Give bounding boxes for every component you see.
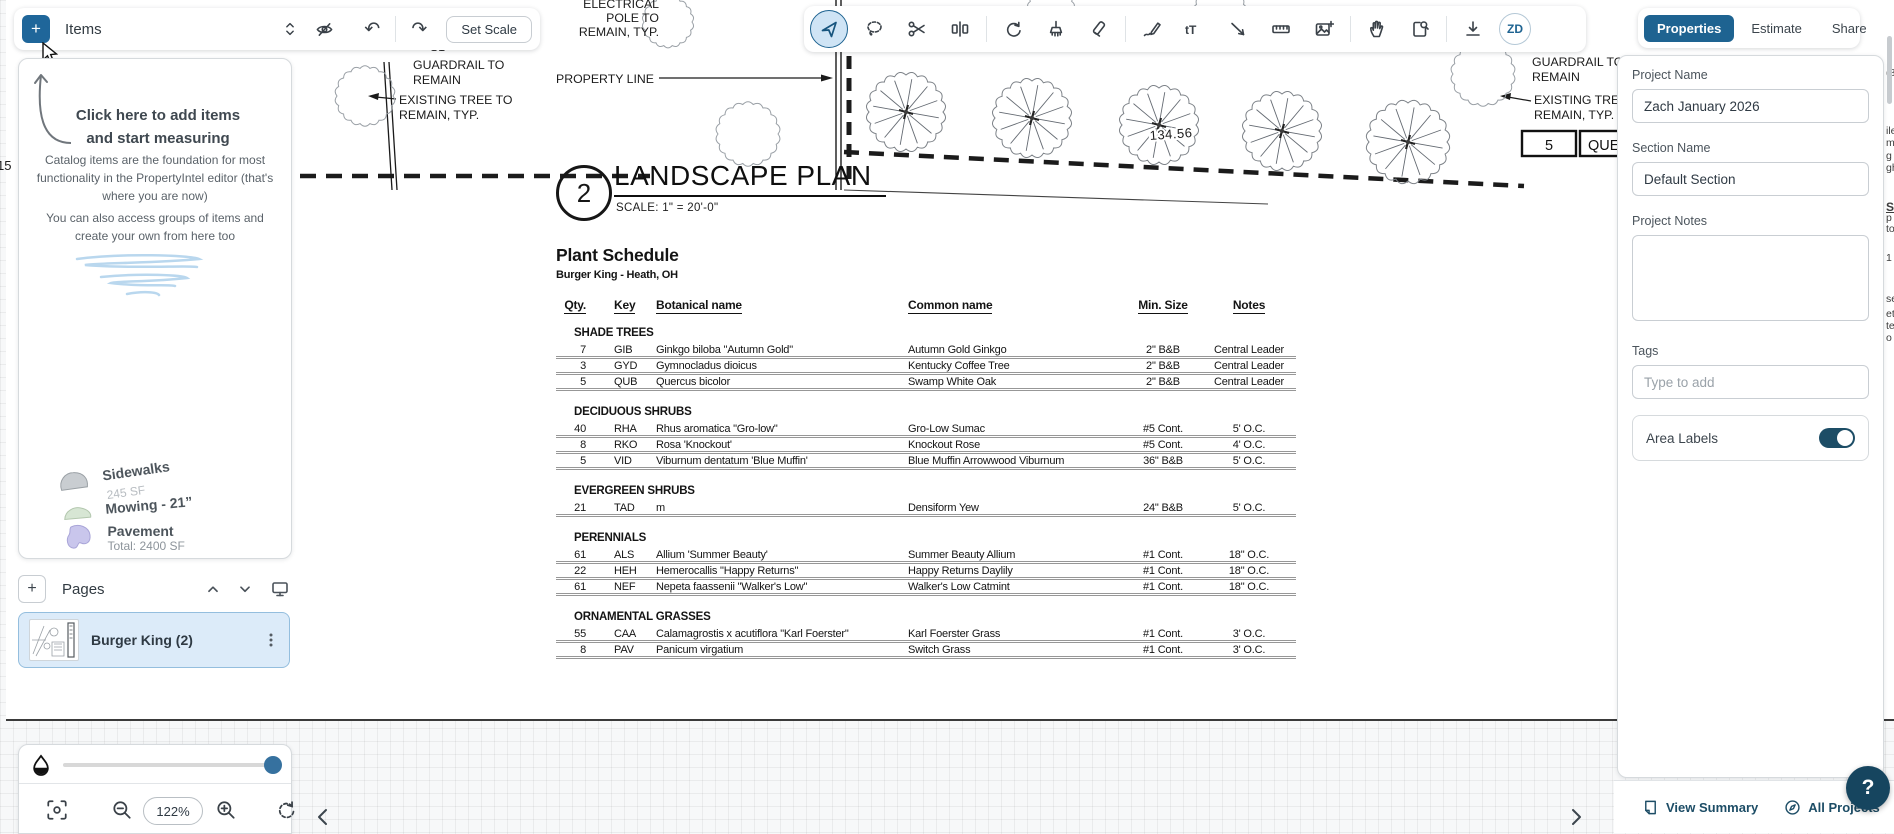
schedule-group: PERENNIALS61ALSAllium 'Summer Beauty'Sum… bbox=[556, 532, 1296, 596]
schedule-cell: Gro-Low Sumac bbox=[906, 423, 1124, 435]
items-toolbar: + Items ↶ ↷ Set Scale bbox=[14, 8, 540, 50]
mowing-swatch bbox=[61, 503, 94, 522]
rotate-tool-button[interactable] bbox=[996, 12, 1030, 46]
eye-off-icon bbox=[315, 20, 334, 39]
plant-schedule-header-row: Qty. Key Botanical name Common name Min.… bbox=[556, 298, 1296, 312]
user-avatar[interactable]: ZD bbox=[1499, 13, 1531, 45]
schedule-group-name: ORNAMENTAL GRASSES bbox=[556, 611, 1296, 627]
schedule-cell: 5' O.C. bbox=[1202, 502, 1296, 514]
schedule-cell: 2" B&B bbox=[1124, 360, 1202, 372]
schedule-cell: 8 bbox=[556, 439, 596, 451]
opacity-slider-handle[interactable] bbox=[264, 756, 282, 774]
collapse-items-button[interactable] bbox=[273, 12, 307, 46]
schedule-cell: Hemerocallis "Happy Returns" bbox=[652, 565, 906, 577]
schedule-cell: 5 bbox=[556, 455, 596, 467]
items-panel-paragraph: Catalog items are the foundation for mos… bbox=[33, 151, 277, 205]
page-search-button[interactable] bbox=[1403, 12, 1437, 46]
schedule-cell: VID bbox=[596, 455, 652, 467]
fit-to-screen-icon[interactable] bbox=[45, 798, 69, 822]
schedule-cell: Karl Foerster Grass bbox=[906, 628, 1124, 640]
drawing-toolbar: tT Z bbox=[804, 6, 1586, 52]
text-size-icon: tT bbox=[1184, 19, 1206, 39]
sample-item-pavement: Pavement Total: 2400 SF bbox=[63, 521, 185, 555]
plan-number-circle: 2 bbox=[556, 165, 612, 221]
edge-text-fragment: ile bbox=[1886, 125, 1894, 137]
hide-items-button[interactable] bbox=[307, 12, 341, 46]
schedule-cell: Nepeta faassenii "Walker's Low" bbox=[652, 581, 906, 593]
schedule-row: 22HEHHemerocallis "Happy Returns"Happy R… bbox=[556, 564, 1296, 580]
schedule-group: ORNAMENTAL GRASSES55CAACalamagrostis x a… bbox=[556, 611, 1296, 659]
schedule-group-name: PERENNIALS bbox=[556, 532, 1296, 548]
edge-text-fragment: o bbox=[1886, 332, 1892, 344]
edge-text-fragment: se bbox=[1886, 293, 1894, 305]
schedule-cell: Summer Beauty Allium bbox=[906, 549, 1124, 561]
schedule-cell: ALS bbox=[596, 549, 652, 561]
area-labels-toggle[interactable] bbox=[1819, 428, 1855, 448]
arrow-tool-button[interactable] bbox=[1221, 12, 1255, 46]
schedule-cell: 2" B&B bbox=[1124, 376, 1202, 388]
items-label: Items bbox=[65, 21, 102, 38]
mirror-icon bbox=[950, 19, 970, 39]
schedule-row: 61NEFNepeta faassenii "Walker's Low"Walk… bbox=[556, 580, 1296, 596]
schedule-cell: Allium 'Summer Beauty' bbox=[652, 549, 906, 561]
sidewalks-swatch bbox=[55, 466, 92, 494]
schedule-cell: 2" B&B bbox=[1124, 344, 1202, 356]
redo-button[interactable]: ↷ bbox=[402, 12, 436, 46]
schedule-cell: #1 Cont. bbox=[1124, 628, 1202, 640]
project-name-label: Project Name bbox=[1632, 68, 1869, 82]
tab-share[interactable]: Share bbox=[1819, 15, 1880, 42]
schedule-row: 21TADmDensiform Yew24" B&B5' O.C. bbox=[556, 501, 1296, 517]
eraser-tool-button[interactable] bbox=[1082, 12, 1116, 46]
edge-text-fragment: gh bbox=[1886, 162, 1894, 174]
cut-tool-button[interactable] bbox=[900, 12, 934, 46]
schedule-group: DECIDUOUS SHRUBS40RHARhus aromatica "Gro… bbox=[556, 406, 1296, 470]
schedule-cell: RHA bbox=[596, 423, 652, 435]
schedule-cell: #1 Cont. bbox=[1124, 565, 1202, 577]
schedule-row: 7GIBGinkgo biloba "Autumn Gold"Autumn Go… bbox=[556, 343, 1296, 359]
project-notes-textarea[interactable] bbox=[1632, 235, 1869, 321]
scissors-icon bbox=[907, 19, 927, 39]
eraser-icon bbox=[1089, 19, 1109, 39]
schedule-cell: RKO bbox=[596, 439, 652, 451]
schedule-cell: #5 Cont. bbox=[1124, 439, 1202, 451]
schedule-cell: 36" B&B bbox=[1124, 455, 1202, 467]
schedule-cell: 8 bbox=[556, 644, 596, 656]
schedule-cell: Happy Returns Daylily bbox=[906, 565, 1124, 577]
tab-estimate[interactable]: Estimate bbox=[1738, 15, 1815, 42]
schedule-cell: CAA bbox=[596, 628, 652, 640]
project-notes-label: Project Notes bbox=[1632, 214, 1869, 228]
schedule-row: 8PAVPanicum virgatiumSwitch Grass#1 Cont… bbox=[556, 643, 1296, 659]
add-page-button[interactable]: + bbox=[18, 575, 46, 603]
schedule-cell: Gymnocladus dioicus bbox=[652, 360, 906, 372]
freehand-draw-button[interactable] bbox=[1135, 12, 1169, 46]
schedule-cell: 40 bbox=[556, 423, 596, 435]
zoom-in-icon[interactable] bbox=[215, 799, 237, 821]
opacity-slider[interactable] bbox=[63, 763, 277, 767]
diagonal-arrow-icon bbox=[1228, 19, 1248, 39]
add-image-button[interactable] bbox=[1307, 12, 1341, 46]
page-panel-icon[interactable] bbox=[270, 579, 290, 599]
schedule-row: 55CAACalamagrostis x acutiflora "Karl Fo… bbox=[556, 627, 1296, 643]
project-name-input[interactable] bbox=[1632, 89, 1869, 123]
schedule-cell: 3 bbox=[556, 360, 596, 372]
pavement-swatch bbox=[63, 521, 97, 555]
schedule-group-name: DECIDUOUS SHRUBS bbox=[556, 406, 1296, 422]
measure-tool-button[interactable] bbox=[1264, 12, 1298, 46]
properties-panel: Project Name Section Name Project Notes … bbox=[1617, 55, 1884, 778]
schedule-cell: 4' O.C. bbox=[1202, 439, 1296, 451]
mirror-tool-button[interactable] bbox=[943, 12, 977, 46]
schedule-group: EVERGREEN SHRUBS21TADmDensiform Yew24" B… bbox=[556, 485, 1296, 517]
schedule-cell: #1 Cont. bbox=[1124, 549, 1202, 561]
add-items-button[interactable]: + bbox=[22, 15, 50, 43]
plant-schedule-subtitle: Burger King - Heath, OH bbox=[556, 269, 1296, 281]
schedule-cell: NEF bbox=[596, 581, 652, 593]
schedule-row: 5VIDViburnum dentatum 'Blue Muffin'Blue … bbox=[556, 454, 1296, 470]
schedule-cell: Calamagrostis x acutiflora "Karl Foerste… bbox=[652, 628, 906, 640]
pan-tool-button[interactable] bbox=[1360, 12, 1394, 46]
schedule-cell: GIB bbox=[596, 344, 652, 356]
schedule-cell: Central Leader bbox=[1202, 360, 1296, 372]
undo-button[interactable]: ↶ bbox=[355, 12, 389, 46]
chevron-up-icon[interactable] bbox=[204, 580, 222, 598]
select-tool-button[interactable] bbox=[810, 10, 848, 48]
reset-rotation-icon[interactable] bbox=[275, 799, 297, 821]
schedule-cell: Knockout Rose bbox=[906, 439, 1124, 451]
edge-text-fragment: m bbox=[1886, 137, 1894, 149]
page-item-burger-king[interactable]: Burger King (2) bbox=[18, 612, 290, 668]
schedule-cell: Rosa 'Knockout' bbox=[652, 439, 906, 451]
items-panel-headline: Click here to add items and start measur… bbox=[63, 105, 253, 150]
text-tool-button[interactable]: tT bbox=[1178, 12, 1212, 46]
schedule-group-name: EVERGREEN SHRUBS bbox=[556, 485, 1296, 501]
schedule-cell: 61 bbox=[556, 581, 596, 593]
items-panel-paragraph: You can also access groups of items and … bbox=[37, 209, 273, 245]
edge-text-fragment: 1 bbox=[1886, 252, 1892, 264]
edge-text-fragment: te bbox=[1886, 320, 1894, 332]
zoom-out-icon[interactable] bbox=[111, 799, 133, 821]
lasso-icon bbox=[864, 19, 884, 39]
rotate-icon bbox=[1003, 19, 1023, 39]
edge-text-fragment: g bbox=[1886, 150, 1892, 162]
schedule-cell: TAD bbox=[596, 502, 652, 514]
edge-text-fragment: et bbox=[1886, 308, 1894, 320]
schedule-cell: Viburnum dentatum 'Blue Muffin' bbox=[652, 455, 906, 467]
schedule-cell: 5 bbox=[556, 376, 596, 388]
set-scale-button[interactable]: Set Scale bbox=[446, 16, 532, 43]
view-controls-panel: 122% bbox=[18, 744, 292, 834]
schedule-cell: Kentucky Coffee Tree bbox=[906, 360, 1124, 372]
schedule-cell: HEH bbox=[596, 565, 652, 577]
schedule-cell: Panicum virgatium bbox=[652, 644, 906, 656]
schedule-cell: 3' O.C. bbox=[1202, 628, 1296, 640]
area-labels-row: Area Labels bbox=[1632, 415, 1869, 461]
schedule-cell: 21 bbox=[556, 502, 596, 514]
schedule-row: 5QUBQuercus bicolorSwamp White Oak2" B&B… bbox=[556, 375, 1296, 391]
ruler-icon bbox=[1271, 19, 1291, 39]
unfold-icon bbox=[281, 20, 299, 38]
view-summary-button[interactable]: View Summary bbox=[1642, 799, 1758, 816]
undo-icon: ↶ bbox=[364, 18, 380, 40]
section-name-label: Section Name bbox=[1632, 141, 1869, 155]
schedule-row: 61ALSAllium 'Summer Beauty'Summer Beauty… bbox=[556, 548, 1296, 564]
broom-icon bbox=[1046, 19, 1066, 39]
svg-text:tT: tT bbox=[1185, 23, 1197, 37]
area-labels-label: Area Labels bbox=[1646, 431, 1718, 446]
schedule-cell: 24" B&B bbox=[1124, 502, 1202, 514]
plant-schedule-title: Plant Schedule bbox=[556, 245, 1296, 266]
schedule-cell: PAV bbox=[596, 644, 652, 656]
tags-label: Tags bbox=[1632, 344, 1869, 358]
zoom-level-badge[interactable]: 122% bbox=[143, 797, 203, 825]
section-name-input[interactable] bbox=[1632, 162, 1869, 196]
compass-icon bbox=[1784, 799, 1801, 816]
items-panel: Click here to add items and start measur… bbox=[18, 58, 292, 559]
pages-label: Pages bbox=[62, 581, 105, 598]
next-page-chevron[interactable] bbox=[1568, 808, 1584, 826]
schedule-cell: #1 Cont. bbox=[1124, 644, 1202, 656]
schedule-cell: Central Leader bbox=[1202, 344, 1296, 356]
plan-scale: SCALE: 1" = 20'-0" bbox=[616, 202, 718, 214]
page-thumbnail bbox=[29, 619, 79, 661]
edge-text-fragment: to bbox=[1886, 223, 1894, 235]
schedule-cell: Walker's Low Catmint bbox=[906, 581, 1124, 593]
panel-scrollbar[interactable] bbox=[1887, 36, 1892, 104]
page-item-label: Burger King (2) bbox=[91, 632, 193, 648]
schedule-cell: Swamp White Oak bbox=[906, 376, 1124, 388]
schedule-group: SHADE TREES7GIBGinkgo biloba "Autumn Gol… bbox=[556, 327, 1296, 391]
schedule-group-name: SHADE TREES bbox=[556, 327, 1296, 343]
prev-page-chevron[interactable] bbox=[315, 808, 331, 826]
schedule-cell: Densiform Yew bbox=[906, 502, 1124, 514]
pencil-squiggle-icon bbox=[1142, 19, 1162, 39]
schedule-cell: Blue Muffin Arrowwood Viburnum bbox=[906, 455, 1124, 467]
hand-icon bbox=[1367, 19, 1387, 39]
tab-properties[interactable]: Properties bbox=[1644, 15, 1734, 42]
schedule-cell: 3' O.C. bbox=[1202, 644, 1296, 656]
redo-icon: ↷ bbox=[411, 18, 427, 40]
tags-input[interactable] bbox=[1632, 365, 1869, 399]
schedule-cell: GYD bbox=[596, 360, 652, 372]
schedule-cell: 55 bbox=[556, 628, 596, 640]
schedule-cell: 5' O.C. bbox=[1202, 423, 1296, 435]
schedule-row: 8RKORosa 'Knockout'Knockout Rose#5 Cont.… bbox=[556, 438, 1296, 454]
schedule-cell: 22 bbox=[556, 565, 596, 577]
pages-header: + Pages bbox=[18, 573, 290, 605]
scribble-illustration bbox=[71, 251, 211, 301]
chevron-down-icon[interactable] bbox=[236, 580, 254, 598]
schedule-cell: Central Leader bbox=[1202, 376, 1296, 388]
schedule-cell: Quercus bicolor bbox=[652, 376, 906, 388]
schedule-cell: m bbox=[652, 502, 906, 514]
opacity-droplet-icon bbox=[29, 753, 53, 779]
schedule-cell: 61 bbox=[556, 549, 596, 561]
schedule-cell: 5' O.C. bbox=[1202, 455, 1296, 467]
schedule-row: 3GYDGymnocladus dioicusKentucky Coffee T… bbox=[556, 359, 1296, 375]
schedule-cell: 7 bbox=[556, 344, 596, 356]
page-magnifier-icon bbox=[1410, 19, 1430, 39]
schedule-cell: 18" O.C. bbox=[1202, 549, 1296, 561]
download-button[interactable] bbox=[1456, 12, 1490, 46]
help-fab[interactable]: ? bbox=[1846, 766, 1890, 810]
schedule-cell: Switch Grass bbox=[906, 644, 1124, 656]
schedule-cell: #1 Cont. bbox=[1124, 581, 1202, 593]
schedule-cell: 18" O.C. bbox=[1202, 565, 1296, 577]
image-plus-icon bbox=[1314, 19, 1334, 39]
summary-doc-icon bbox=[1642, 799, 1659, 816]
schedule-cell: Autumn Gold Ginkgo bbox=[906, 344, 1124, 356]
schedule-row: 40RHARhus aromatica "Gro-low"Gro-Low Sum… bbox=[556, 422, 1296, 438]
schedule-cell: Ginkgo biloba "Autumn Gold" bbox=[652, 344, 906, 356]
broom-tool-button[interactable] bbox=[1039, 12, 1073, 46]
plan-title: LANDSCAPE PLAN bbox=[614, 160, 886, 197]
schedule-cell: Rhus aromatica "Gro-low" bbox=[652, 423, 906, 435]
plant-schedule: Plant Schedule Burger King - Heath, OH Q… bbox=[556, 245, 1296, 659]
download-icon bbox=[1463, 19, 1483, 39]
navigation-cursor-icon bbox=[819, 19, 839, 39]
panel-tabs: Properties Estimate Share bbox=[1638, 8, 1860, 48]
schedule-cell: QUB bbox=[596, 376, 652, 388]
lasso-tool-button[interactable] bbox=[857, 12, 891, 46]
schedule-cell: 18" O.C. bbox=[1202, 581, 1296, 593]
page-item-menu[interactable] bbox=[263, 631, 279, 649]
schedule-cell: #5 Cont. bbox=[1124, 423, 1202, 435]
